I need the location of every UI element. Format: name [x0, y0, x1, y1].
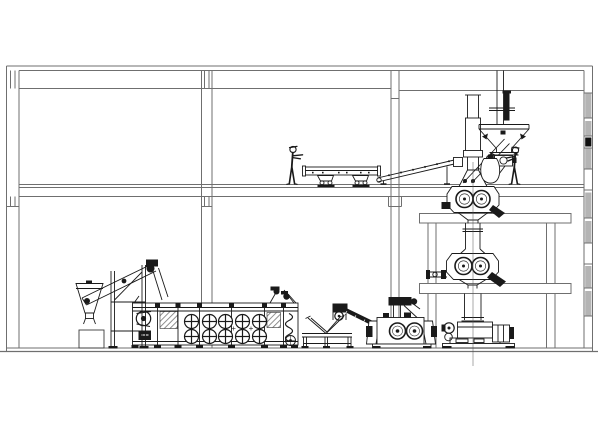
discharge-bag [481, 155, 500, 184]
dryer-outlet-panel [267, 313, 281, 328]
conveyor-head-box [454, 158, 463, 167]
level-sensor-cylinder [504, 93, 510, 121]
right-wall [584, 66, 593, 352]
plant-elevation-drawing: Industrial feed-mill plant — sectional e… [0, 0, 600, 421]
platform-lower [420, 284, 572, 294]
paper-background [0, 0, 600, 421]
worker-cap [512, 147, 519, 148]
dryer-inlet-panel [160, 312, 178, 329]
drawing-canvas: Industrial feed-mill plant — sectional e… [0, 0, 600, 421]
